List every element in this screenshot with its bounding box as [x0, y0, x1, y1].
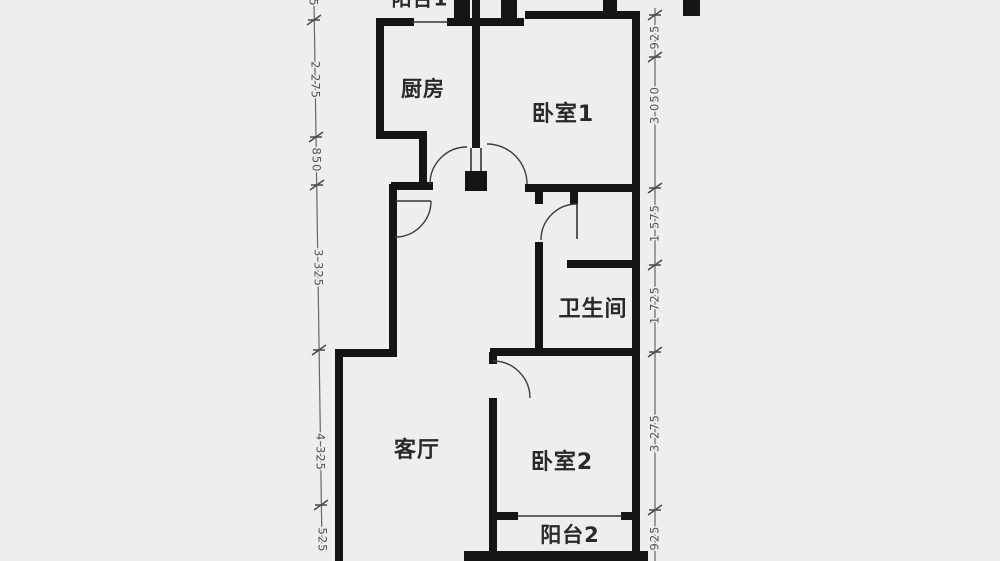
room-label-balcony2: 阳台2 — [540, 523, 600, 547]
balcony1-wall-stub-right — [501, 0, 517, 20]
hall-door-arc — [395, 201, 431, 237]
dimension-label-left-2275: 2 275 — [309, 61, 323, 99]
dimension-label-right-1725: 1 725 — [648, 286, 662, 324]
room-label-bathroom: 卫生间 — [558, 297, 627, 322]
floor-plan-drawing: 1 5 2 275 850 3 325 4 325 525 925 3 050 … — [0, 0, 1000, 561]
bedroom2-door-arc — [493, 361, 530, 398]
dimension-line-layer — [314, 0, 655, 561]
dimension-labels: 1 5 2 275 850 3 325 4 325 525 925 3 050 … — [307, 0, 662, 552]
dimension-label-left-850: 850 — [310, 148, 324, 173]
dimension-label-right-3050: 3 050 — [648, 86, 662, 124]
room-labels: 厨房 卧室1 卫生间 客厅 卧室2 阳台2 阳台1 — [392, 0, 628, 547]
kitchen-door-arc — [430, 147, 467, 184]
scan-artifact-mark — [683, 0, 700, 16]
living-room-walls — [335, 352, 397, 561]
room-label-balcony1-clipped: 阳台1 — [392, 0, 449, 11]
dimension-label-left-3325: 3 325 — [312, 249, 326, 287]
dimension-label-right-3275: 3 275 — [648, 414, 662, 452]
hall-door-post — [465, 171, 487, 191]
room-label-bedroom2: 卧室2 — [531, 449, 593, 475]
kitchen-walls — [380, 18, 524, 186]
floor-plan-scan: 1 5 2 275 850 3 325 4 325 525 925 3 050 … — [0, 0, 1000, 561]
bedroom1-top-wall-stub — [603, 0, 617, 16]
dimension-label-right-925-top: 925 — [648, 25, 662, 50]
dimension-label-right-1575: 1 575 — [648, 204, 662, 242]
room-label-living-room: 客厅 — [394, 437, 440, 463]
dimension-label-left-clipped: 1 5 — [307, 0, 321, 7]
room-label-bedroom1: 卧室1 — [532, 101, 594, 127]
dimension-label-right-925-bottom: 925 — [648, 526, 662, 551]
dimension-label-left-525: 525 — [316, 528, 330, 553]
bedroom1-door-arc — [487, 144, 527, 184]
bathroom-door-arc — [541, 204, 577, 240]
balcony1-wall-stub-left — [454, 0, 470, 24]
hall-door-frame-lines — [471, 148, 481, 171]
wall-layer — [335, 0, 640, 561]
room-label-kitchen: 厨房 — [401, 77, 445, 101]
wall-stubs — [454, 0, 700, 191]
dimension-label-left-4325: 4 325 — [314, 433, 328, 471]
